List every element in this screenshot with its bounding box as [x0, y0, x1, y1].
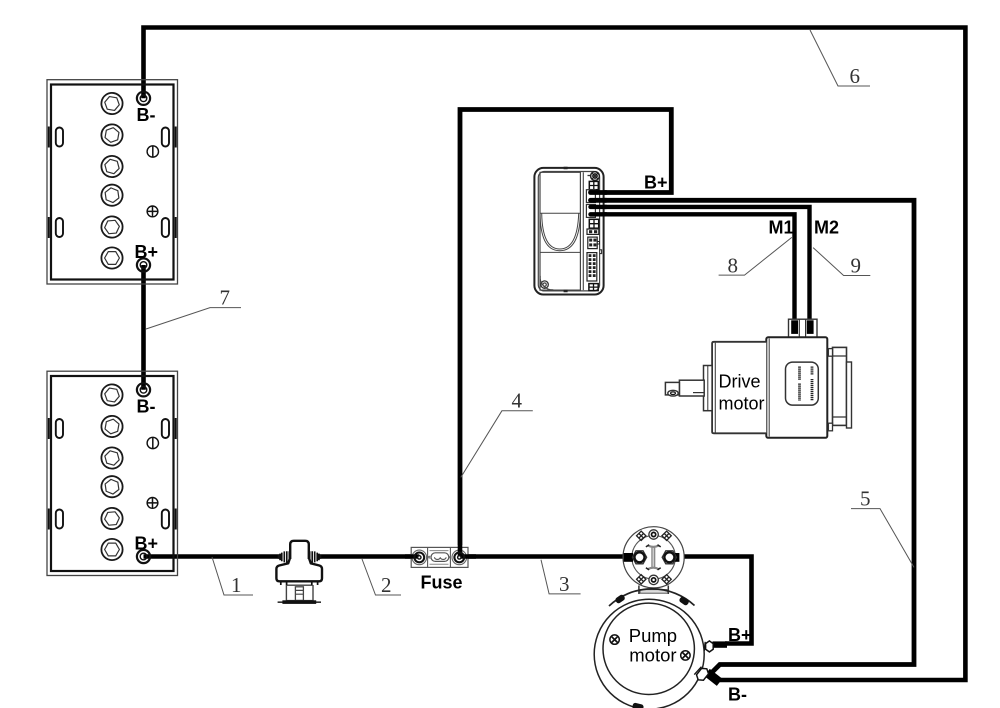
svg-text:M2: M2: [814, 218, 839, 238]
svg-text:B+: B+: [644, 173, 668, 193]
svg-text:Fuse: Fuse: [421, 573, 463, 593]
svg-text:5: 5: [860, 487, 871, 511]
svg-text:1: 1: [231, 573, 242, 597]
svg-text:B+: B+: [728, 625, 752, 645]
svg-text:motor: motor: [719, 394, 765, 414]
svg-text:B-: B-: [728, 685, 747, 705]
svg-text:M1: M1: [769, 218, 794, 238]
svg-text:7: 7: [220, 286, 231, 310]
svg-text:8: 8: [728, 254, 739, 278]
svg-text:3: 3: [559, 572, 570, 596]
svg-text:motor: motor: [629, 645, 676, 666]
svg-text:4: 4: [512, 389, 523, 413]
svg-text:Pump: Pump: [629, 625, 677, 646]
svg-text:9: 9: [851, 254, 862, 278]
svg-text:2: 2: [381, 573, 392, 597]
svg-text:6: 6: [850, 64, 861, 88]
svg-text:Drive: Drive: [719, 371, 761, 391]
